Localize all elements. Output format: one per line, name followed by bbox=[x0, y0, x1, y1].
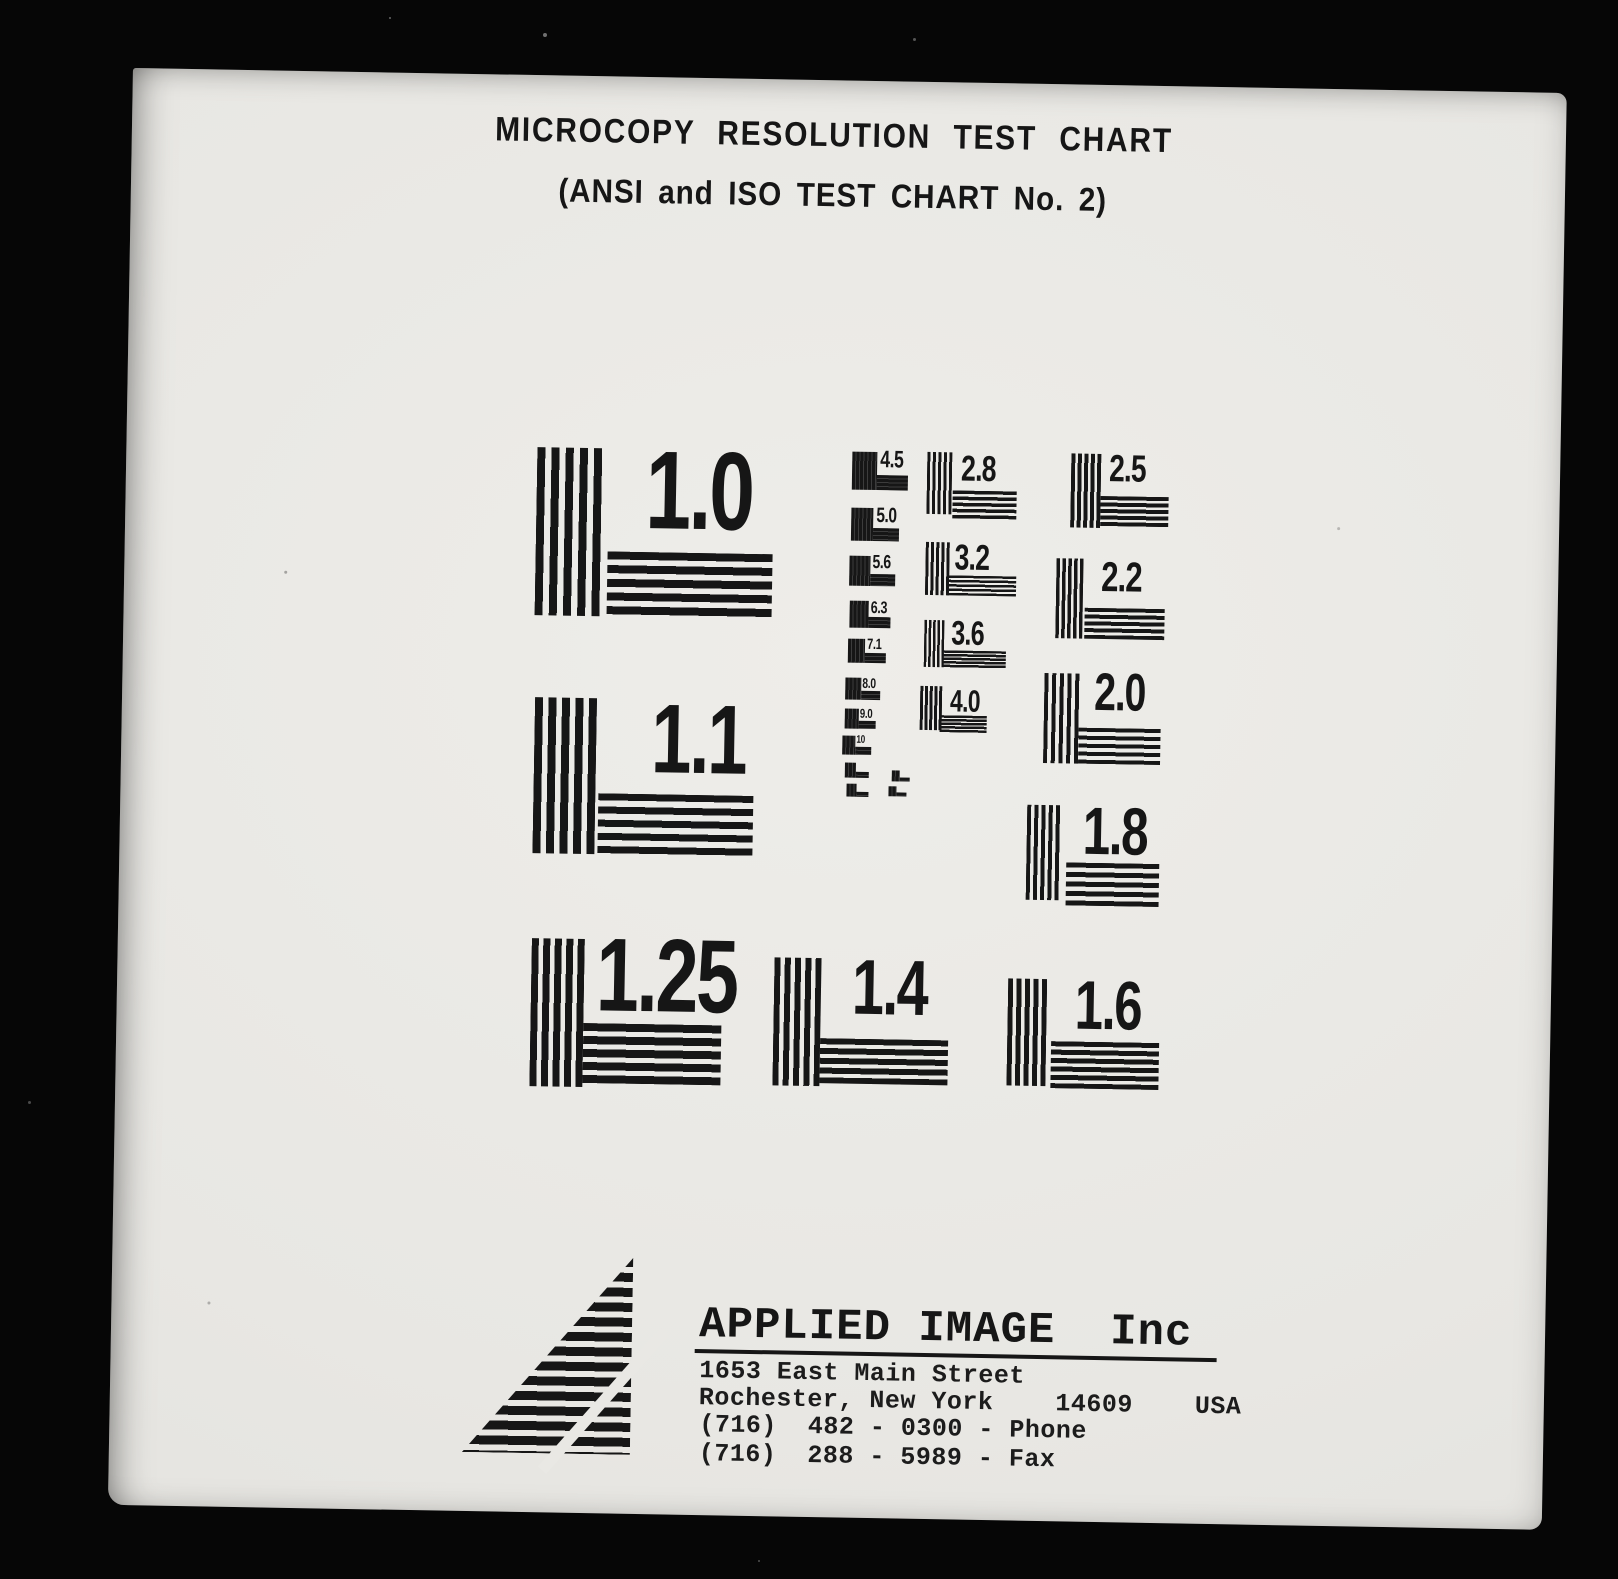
vertical-bars bbox=[1006, 978, 1047, 1086]
dust-speck bbox=[389, 17, 391, 19]
horizontal-bars bbox=[877, 475, 908, 491]
scan-background: MICROCOPY RESOLUTION TEST CHART (ANSI an… bbox=[0, 0, 1618, 1579]
page-subtitle-text: (ANSI and ISO TEST CHART No. 2) bbox=[558, 171, 1107, 219]
vertical-bars bbox=[848, 639, 865, 663]
target-label: 5.0 bbox=[876, 505, 897, 526]
phone-number: (716) 482 - 0300 - Phone bbox=[699, 1412, 1087, 1444]
target-label: 10 bbox=[856, 735, 865, 746]
fax-number: (716) 288 - 5989 - Fax bbox=[699, 1441, 1056, 1472]
vertical-bars bbox=[845, 709, 859, 729]
target-label: 9.0 bbox=[860, 707, 873, 720]
horizontal-bars bbox=[1078, 728, 1161, 765]
target-label: 1.25 bbox=[595, 923, 737, 1029]
vertical-bars bbox=[892, 770, 900, 781]
horizontal-bars bbox=[856, 792, 868, 797]
horizontal-bars bbox=[1050, 1041, 1159, 1090]
vertical-bars bbox=[888, 786, 896, 796]
dust-speck bbox=[207, 1301, 210, 1304]
target-label: 3.6 bbox=[951, 616, 984, 651]
target-label: 3.2 bbox=[954, 539, 989, 576]
target-label: 1.1 bbox=[651, 689, 747, 789]
target-label: 1.6 bbox=[1074, 971, 1142, 1041]
dust-speck bbox=[28, 1101, 31, 1104]
vertical-bars bbox=[926, 452, 952, 514]
test-chart-page: MICROCOPY RESOLUTION TEST CHART (ANSI an… bbox=[108, 68, 1567, 1530]
target-label: 1.4 bbox=[851, 948, 927, 1027]
horizontal-bars bbox=[859, 721, 876, 729]
horizontal-bars bbox=[952, 490, 1016, 519]
target-label: 4.0 bbox=[950, 685, 980, 717]
vertical-bars bbox=[851, 508, 874, 541]
company-name: APPLIED IMAGE Inc bbox=[699, 1303, 1193, 1356]
horizontal-bars bbox=[819, 1038, 948, 1085]
dust-speck bbox=[284, 571, 287, 574]
horizontal-bars bbox=[856, 772, 869, 778]
horizontal-bars bbox=[947, 575, 1016, 596]
applied-image-logo bbox=[462, 1255, 640, 1455]
horizontal-bars bbox=[1084, 608, 1165, 640]
target-label: 7.1 bbox=[867, 637, 882, 652]
vertical-bars bbox=[529, 938, 585, 1087]
target-label: 2.2 bbox=[1101, 556, 1142, 599]
dust-speck bbox=[913, 38, 916, 41]
horizontal-bars bbox=[861, 691, 880, 700]
vertical-bars bbox=[1055, 558, 1083, 638]
horizontal-bars bbox=[870, 574, 895, 586]
target-label: 8.0 bbox=[862, 676, 876, 690]
vertical-bars bbox=[1070, 453, 1101, 528]
horizontal-bars bbox=[942, 650, 1006, 668]
horizontal-bars bbox=[607, 551, 773, 617]
vertical-bars bbox=[849, 601, 868, 628]
logo-striped-triangle bbox=[462, 1255, 640, 1455]
horizontal-bars bbox=[896, 792, 906, 796]
horizontal-bars bbox=[1100, 496, 1169, 527]
vertical-bars bbox=[535, 447, 603, 616]
target-label: 4.5 bbox=[880, 448, 904, 472]
vertical-bars bbox=[852, 452, 878, 490]
horizontal-bars bbox=[868, 617, 890, 628]
vertical-bars bbox=[846, 784, 856, 797]
vertical-bars bbox=[1043, 673, 1080, 764]
target-label: 5.6 bbox=[872, 553, 891, 572]
target-label: 2.5 bbox=[1109, 450, 1146, 489]
page-title-text: MICROCOPY RESOLUTION TEST CHART bbox=[495, 110, 1173, 161]
vertical-bars bbox=[849, 556, 871, 586]
dust-speck bbox=[758, 1560, 760, 1562]
vertical-bars bbox=[532, 697, 597, 854]
horizontal-bars bbox=[900, 777, 910, 781]
vertical-bars bbox=[845, 678, 861, 700]
horizontal-bars bbox=[865, 653, 886, 663]
target-label: 2.0 bbox=[1094, 666, 1146, 720]
horizontal-bars bbox=[855, 747, 871, 755]
vertical-bars bbox=[845, 763, 856, 778]
target-label: 1.8 bbox=[1082, 798, 1148, 866]
dust-speck bbox=[1337, 527, 1340, 530]
horizontal-bars bbox=[597, 793, 753, 856]
target-label: 1.0 bbox=[645, 435, 754, 548]
target-label: 2.8 bbox=[961, 451, 996, 488]
dust-speck bbox=[543, 33, 547, 37]
horizontal-bars bbox=[873, 528, 899, 541]
page-title: MICROCOPY RESOLUTION TEST CHART bbox=[132, 104, 1536, 167]
vertical-bars bbox=[842, 735, 855, 754]
page-subtitle: (ANSI and ISO TEST CHART No. 2) bbox=[131, 164, 1535, 226]
vertical-bars bbox=[1026, 805, 1061, 901]
vertical-bars bbox=[772, 957, 821, 1086]
target-label: 6.3 bbox=[871, 599, 888, 616]
